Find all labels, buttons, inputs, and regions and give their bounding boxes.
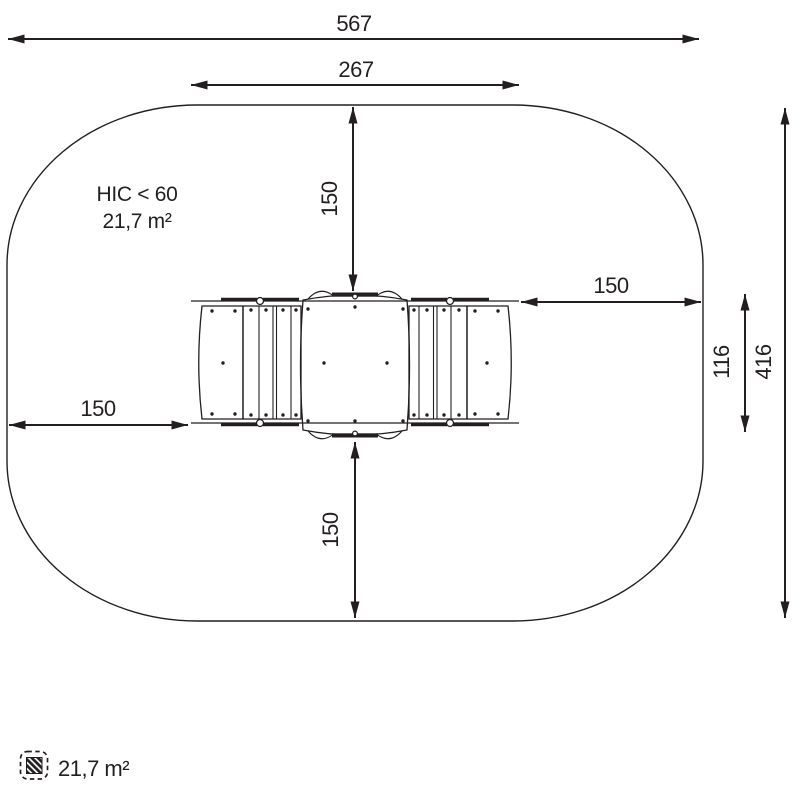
dim-clearance-bottom-label: 150	[318, 512, 343, 547]
dim-overall-depth: 416	[751, 108, 785, 618]
center-platform	[301, 291, 410, 439]
legend: 21,7 m²	[21, 752, 130, 782]
zone-area-label: 21,7 m²	[102, 210, 171, 233]
dim-clearance-top-label: 150	[317, 181, 342, 216]
bolt-dots-right	[412, 308, 499, 416]
dim-overall-width: 567	[8, 11, 699, 39]
equipment-top-view	[191, 291, 519, 439]
dim-device-depth-label: 116	[709, 345, 734, 379]
dim-clearance-right-label: 150	[593, 273, 628, 298]
safety-zone-drawing: HIC < 60 21,7 m²	[0, 0, 800, 800]
dim-clearance-right: 150	[521, 273, 701, 302]
dim-clearance-left-label: 150	[80, 396, 115, 421]
bolt-dots-center	[306, 305, 404, 422]
bolt-dots-left	[210, 308, 297, 416]
dim-device-width: 267	[191, 57, 519, 85]
dim-clearance-left: 150	[9, 396, 188, 425]
dim-overall-width-label: 567	[336, 11, 371, 36]
left-module	[199, 306, 301, 419]
legend-area-label: 21,7 m²	[58, 756, 129, 781]
dim-clearance-bottom: 150	[318, 442, 355, 618]
dim-device-depth: 116	[709, 294, 745, 432]
dim-overall-depth-label: 416	[751, 344, 776, 379]
zone-hic-label: HIC < 60	[96, 183, 177, 206]
dim-clearance-top: 150	[317, 107, 353, 291]
safety-zone-plan: HIC < 60 21,7 m²	[0, 0, 800, 800]
dim-device-width-label: 267	[338, 57, 373, 82]
equipment-crossbars	[191, 298, 519, 427]
dimension-lines: 567 267 150 150 150 150 116 416	[8, 11, 785, 618]
hatched-area-icon	[21, 752, 48, 780]
right-module	[409, 306, 511, 419]
